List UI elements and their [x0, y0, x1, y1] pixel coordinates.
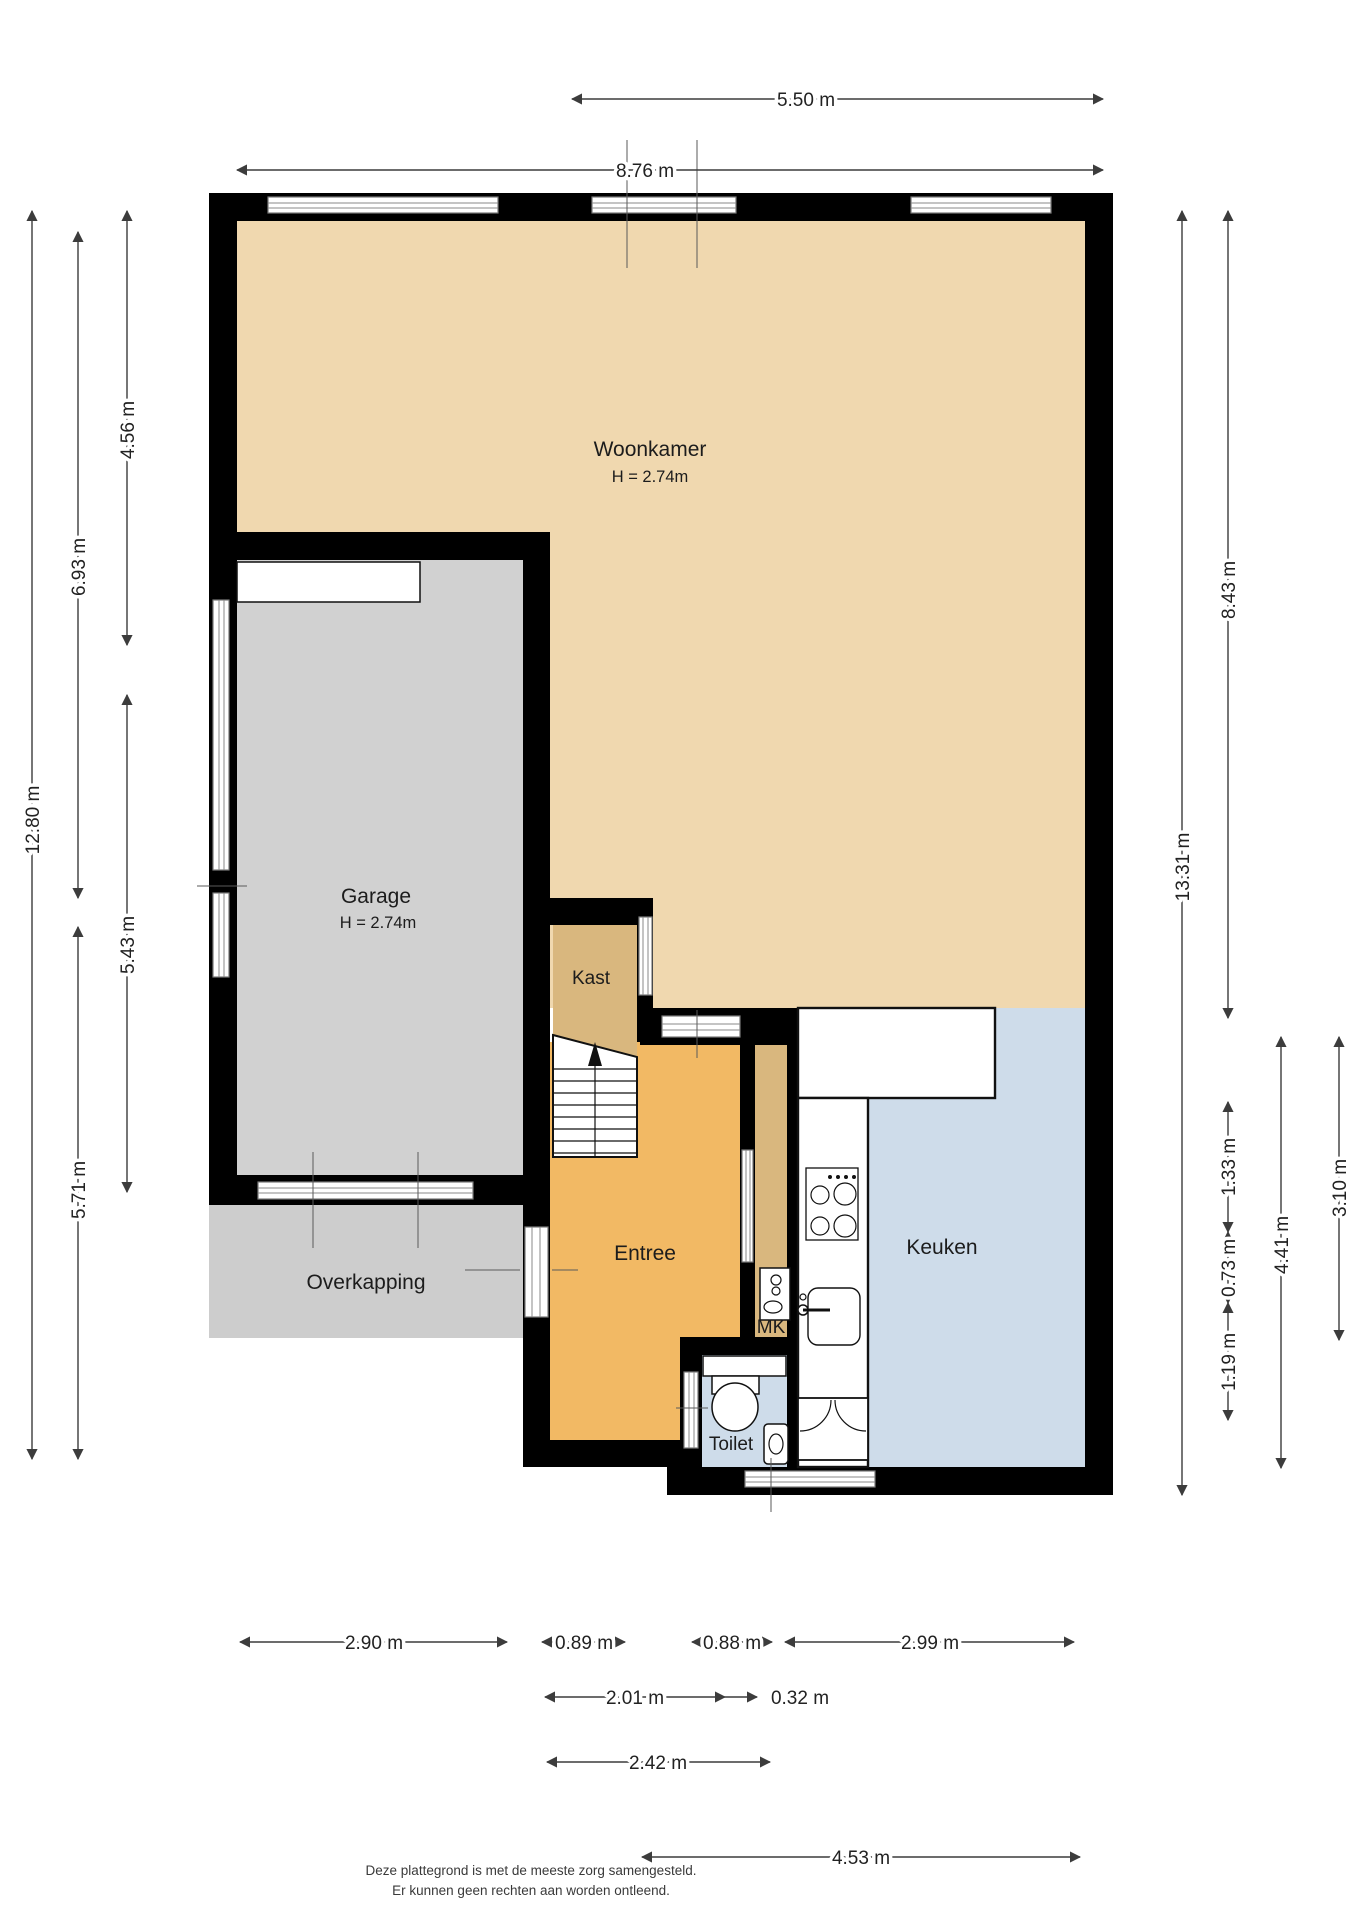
dim-right-2: 1.33 m	[1219, 1138, 1240, 1196]
wall-left-upper	[209, 221, 237, 532]
window	[213, 600, 229, 870]
window	[745, 1471, 875, 1487]
dim-bottom-5: 0.32 m	[771, 1688, 829, 1709]
dim-bottom-7: 4.53 m	[832, 1848, 890, 1869]
dim-right-5: 4.41 m	[1272, 1216, 1293, 1274]
room-label-mk: MK	[757, 1317, 786, 1338]
dim-left-2: 12.80 m	[23, 786, 44, 855]
room-kast	[553, 925, 637, 1057]
room-height-woonkamer: H = 2.74m	[612, 468, 689, 486]
room-label-kast: Kast	[572, 968, 611, 989]
room-label-overkapping: Overkapping	[306, 1271, 425, 1294]
cooktop-symbol	[806, 1168, 858, 1240]
hand-sink-symbol	[764, 1424, 788, 1464]
dim-bottom-2: 0.88 m	[703, 1633, 761, 1654]
kast-door	[639, 917, 652, 995]
dim-right-3: 0.73 m	[1219, 1239, 1240, 1297]
floorplan-page: Woonkamer H = 2.74m Garage H = 2.74m Kas…	[0, 0, 1358, 1920]
window	[213, 893, 229, 977]
dim-left-4: 5.71 m	[69, 1161, 90, 1219]
dim-left-0: 4.56 m	[118, 401, 139, 459]
window-interior	[662, 1016, 740, 1037]
mk-door	[742, 1150, 753, 1262]
dim-right-4: 1.19 m	[1219, 1333, 1240, 1391]
floorplan-drawing: Woonkamer H = 2.74m Garage H = 2.74m Kas…	[0, 0, 1358, 1920]
dim-bottom-0: 2.90 m	[345, 1633, 403, 1654]
dim-bottom-4: 2.01 m	[606, 1688, 664, 1709]
window	[592, 197, 736, 213]
disclaimer: Deze plattegrond is met de meeste zorg s…	[366, 1863, 697, 1898]
dim-bottom-6: 2.42 m	[629, 1753, 687, 1774]
dim-bottom-3: 2.99 m	[901, 1633, 959, 1654]
room-garage	[237, 560, 523, 1175]
disclaimer-line-1: Deze plattegrond is met de meeste zorg s…	[366, 1863, 697, 1878]
room-height-garage: H = 2.74m	[340, 914, 417, 932]
meter-symbols	[760, 1268, 790, 1320]
cabinet-symbol	[798, 1398, 868, 1460]
room-label-garage: Garage	[341, 885, 411, 908]
kitchen-counter-top	[798, 1008, 995, 1098]
dim-right-0: 8.43 m	[1219, 561, 1240, 619]
garage-recess	[237, 562, 420, 602]
room-label-woonkamer: Woonkamer	[594, 438, 707, 461]
stairs-symbol	[553, 1035, 637, 1157]
dim-top-1: 8.76 m	[616, 161, 674, 182]
window	[268, 197, 498, 213]
wall-mk-toilet-right	[787, 1045, 798, 1467]
disclaimer-line-2: Er kunnen geen rechten aan worden ontlee…	[392, 1883, 670, 1898]
dim-left-1: 6.93 m	[69, 538, 90, 596]
window	[911, 197, 1051, 213]
dim-top-0: 5.50 m	[777, 90, 835, 111]
room-label-keuken: Keuken	[906, 1236, 977, 1259]
front-door	[525, 1227, 548, 1317]
wall-right	[1085, 221, 1113, 1495]
dim-left-3: 5.43 m	[118, 916, 139, 974]
room-label-entree: Entree	[614, 1242, 676, 1265]
garage-door	[258, 1182, 473, 1199]
wall-entree-bottom	[523, 1440, 690, 1467]
dim-bottom-1: 0.89 m	[555, 1633, 613, 1654]
wall-woonkamer-garage	[209, 532, 550, 560]
wall-south	[667, 1467, 1113, 1495]
dim-right-6: 3.10 m	[1330, 1159, 1351, 1217]
room-label-toilet: Toilet	[709, 1434, 754, 1455]
window-toilet	[684, 1372, 698, 1448]
dim-right-1: 13.31 m	[1173, 833, 1194, 902]
